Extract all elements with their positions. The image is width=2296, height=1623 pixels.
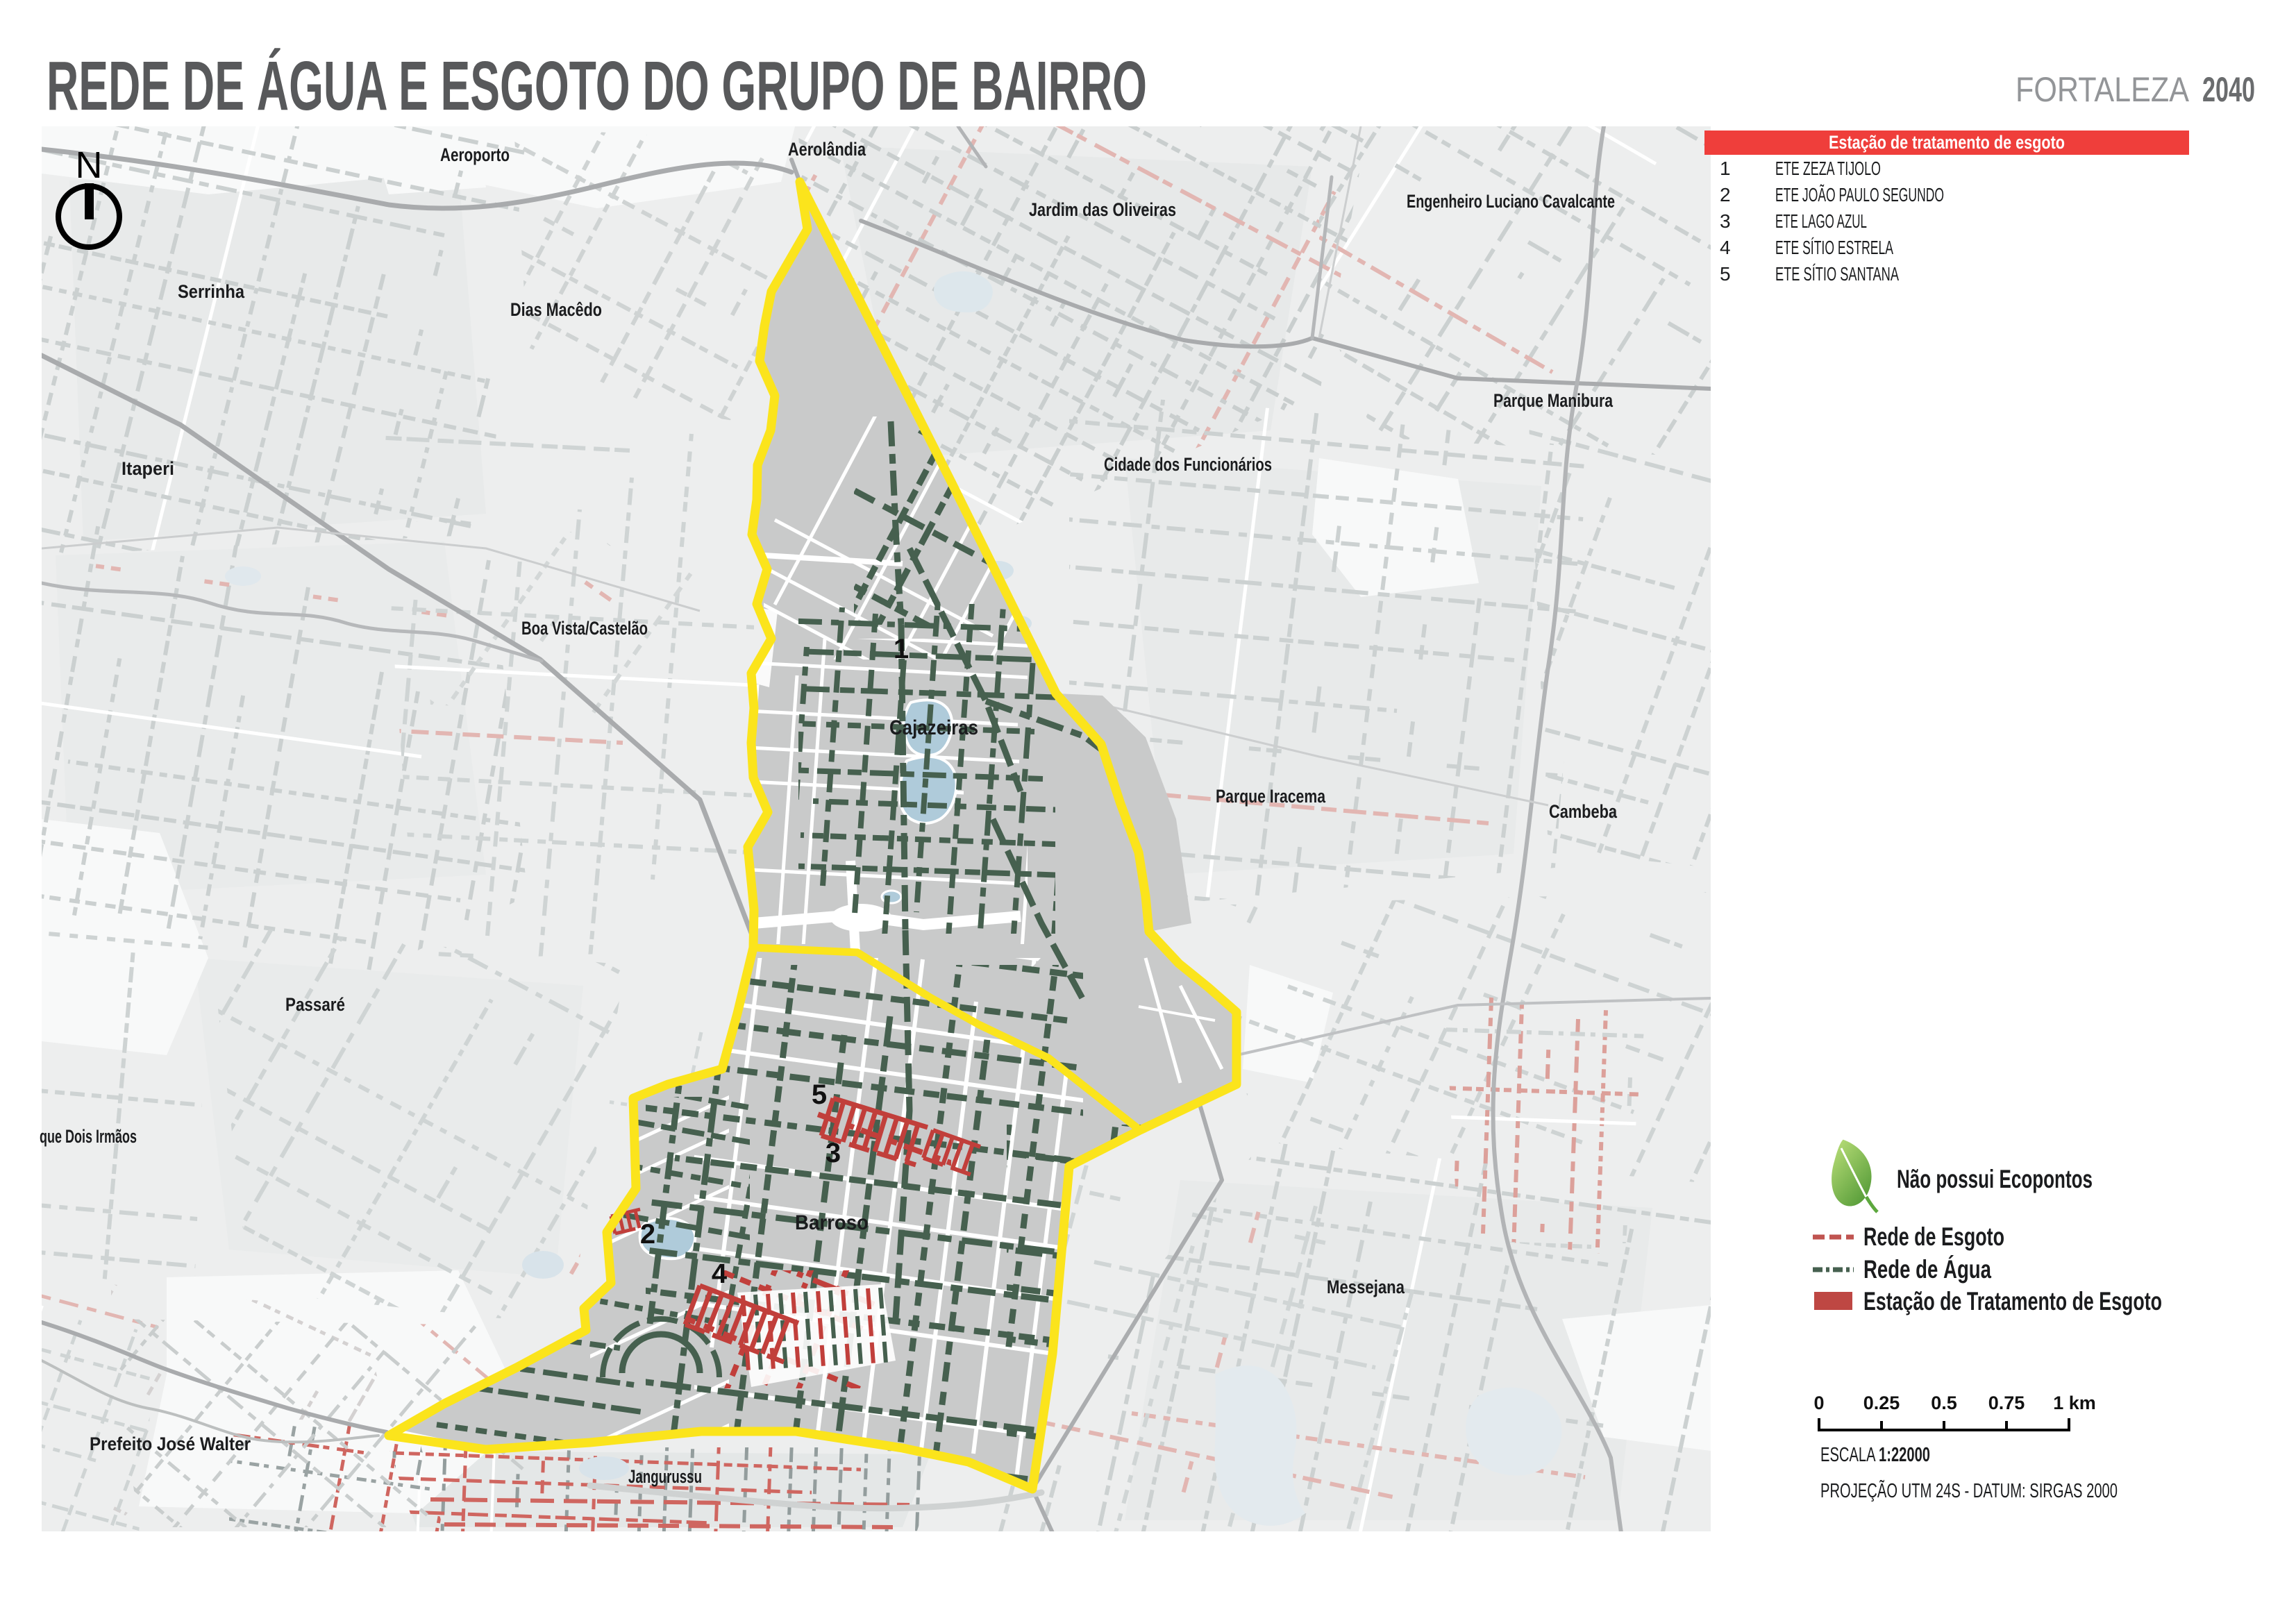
svg-text:0.75: 0.75	[1988, 1393, 2025, 1413]
svg-text:ETE LAGO AZUL: ETE LAGO AZUL	[1775, 210, 1867, 232]
svg-text:5: 5	[812, 1079, 827, 1110]
svg-text:ESCALA 1:22000: ESCALA 1:22000	[1820, 1444, 1930, 1466]
svg-text:3: 3	[826, 1138, 841, 1168]
svg-text:ETE SÍTIO ESTRELA: ETE SÍTIO ESTRELA	[1775, 237, 1893, 258]
svg-text:Cajazeiras: Cajazeiras	[889, 716, 978, 739]
svg-text:ETE ZEZA TIJOLO: ETE ZEZA TIJOLO	[1775, 158, 1881, 179]
svg-text:3: 3	[1720, 210, 1731, 232]
svg-text:Messejana: Messejana	[1327, 1277, 1405, 1297]
svg-text:Estação de tratamento de esgot: Estação de tratamento de esgoto	[1829, 132, 2065, 153]
svg-text:1: 1	[1720, 158, 1731, 179]
svg-text:Estação de Tratamento de Esgot: Estação de Tratamento de Esgoto	[1863, 1287, 2162, 1315]
svg-text:2040: 2040	[2202, 70, 2255, 109]
svg-text:Boa Vista/Castelão: Boa Vista/Castelão	[521, 618, 648, 639]
svg-text:Parque Manibura: Parque Manibura	[1493, 390, 1614, 411]
svg-text:REDE DE ÁGUA E ESGOTO DO GRUPO: REDE DE ÁGUA E ESGOTO DO GRUPO DE BAIRRO	[47, 47, 1147, 125]
svg-text:Cidade dos Funcionários: Cidade dos Funcionários	[1104, 454, 1272, 475]
svg-text:Jardim das Oliveiras: Jardim das Oliveiras	[1029, 199, 1176, 220]
svg-text:Dias Macêdo: Dias Macêdo	[510, 299, 602, 320]
svg-text:Parque Iracema: Parque Iracema	[1216, 786, 1326, 807]
svg-text:Não possui Ecopontos: Não possui Ecopontos	[1897, 1165, 2093, 1193]
svg-text:1 km: 1 km	[2053, 1393, 2096, 1413]
svg-text:5: 5	[1720, 263, 1731, 285]
svg-text:Rede de Esgoto: Rede de Esgoto	[1863, 1222, 2004, 1251]
svg-text:Aeroporto: Aeroporto	[440, 144, 510, 165]
svg-text:Engenheiro Luciano Cavalcante: Engenheiro Luciano Cavalcante	[1407, 191, 1615, 212]
svg-text:0.5: 0.5	[1931, 1393, 1957, 1413]
svg-text:ETE SÍTIO SANTANA: ETE SÍTIO SANTANA	[1775, 263, 1899, 285]
svg-text:Itaperi: Itaperi	[121, 458, 174, 479]
svg-text:0.25: 0.25	[1863, 1393, 1900, 1413]
svg-text:Barroso: Barroso	[795, 1211, 869, 1234]
svg-text:Rede de Água: Rede de Água	[1863, 1255, 1991, 1284]
svg-text:0: 0	[1813, 1393, 1824, 1413]
svg-text:Passaré: Passaré	[285, 994, 345, 1015]
svg-text:ETE JOÃO PAULO SEGUNDO: ETE JOÃO PAULO SEGUNDO	[1775, 184, 1944, 205]
svg-text:2: 2	[1720, 184, 1731, 205]
svg-text:Serrinha: Serrinha	[178, 281, 245, 302]
svg-text:Jangurussu: Jangurussu	[628, 1466, 702, 1487]
svg-text:PROJEÇÃO UTM 24S - DATUM: SIRG: PROJEÇÃO UTM 24S - DATUM: SIRGAS 2000	[1820, 1479, 2118, 1502]
svg-text:4: 4	[1720, 237, 1731, 258]
svg-text:FORTALEZA: FORTALEZA	[2016, 70, 2190, 109]
svg-text:N: N	[76, 144, 103, 186]
svg-text:1: 1	[894, 634, 909, 664]
svg-text:2: 2	[640, 1219, 655, 1250]
svg-text:que Dois Irmãos: que Dois Irmãos	[40, 1126, 137, 1147]
svg-text:4: 4	[712, 1259, 728, 1289]
svg-text:Aerolândia: Aerolândia	[788, 139, 866, 160]
svg-text:Cambeba: Cambeba	[1549, 801, 1618, 822]
svg-text:Prefeito José Walter: Prefeito José Walter	[90, 1433, 251, 1454]
